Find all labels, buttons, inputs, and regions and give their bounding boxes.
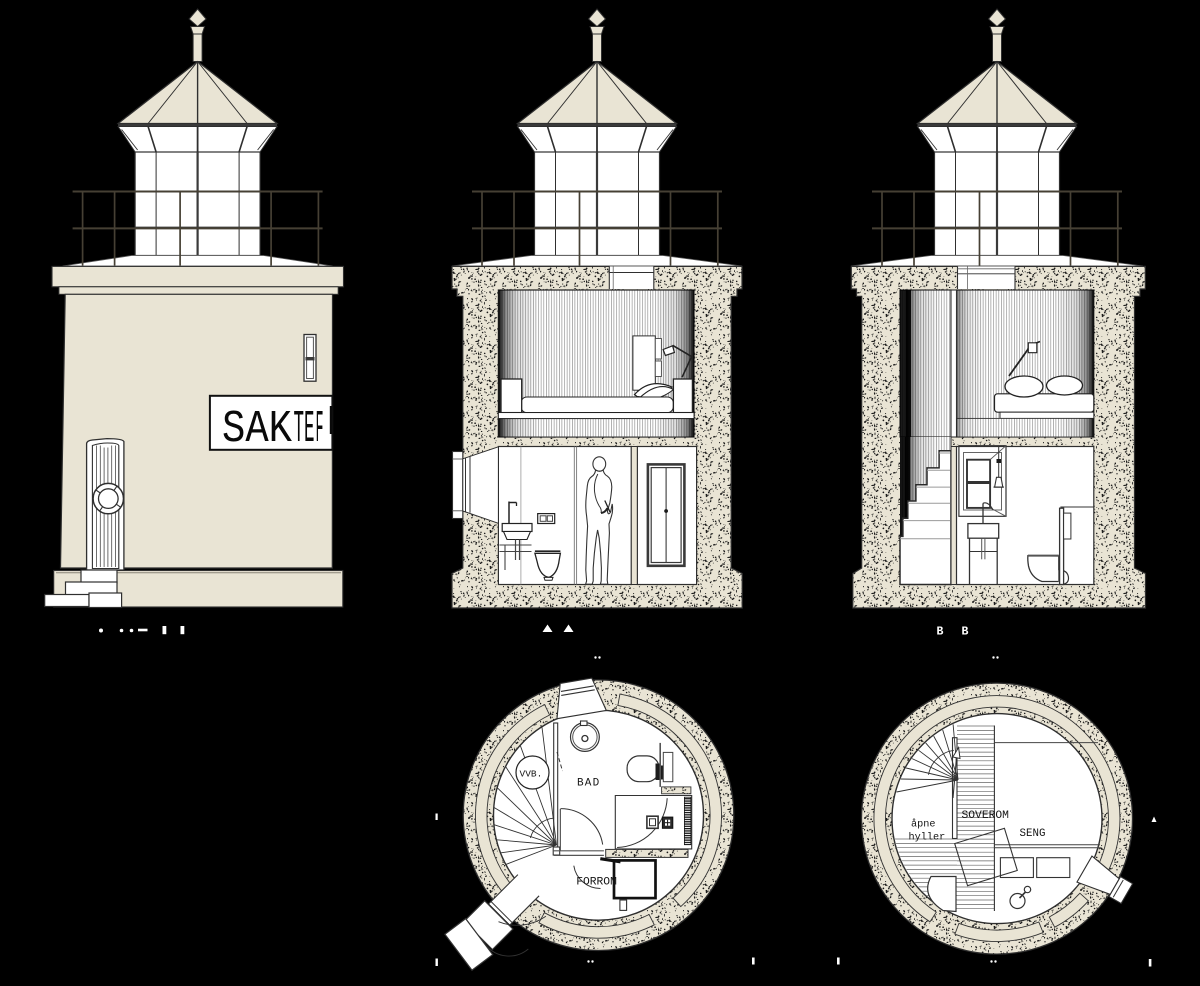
svg-text:FORROM: FORROM [576, 877, 617, 889]
svg-text:hyller: hyller [909, 832, 946, 844]
svg-text:SENG: SENG [1020, 828, 1046, 840]
svg-text:B: B [962, 626, 969, 639]
svg-text:SOVEROM: SOVEROM [962, 810, 1010, 822]
svg-text:SAK: SAK [222, 403, 293, 455]
svg-text:B: B [937, 626, 944, 639]
svg-text:BAD: BAD [577, 777, 600, 789]
svg-text:TE: TE [294, 403, 315, 455]
svg-text:åpne: åpne [911, 818, 935, 831]
svg-text:F: F [316, 403, 324, 455]
svg-text:VVB.: VVB. [520, 769, 543, 780]
